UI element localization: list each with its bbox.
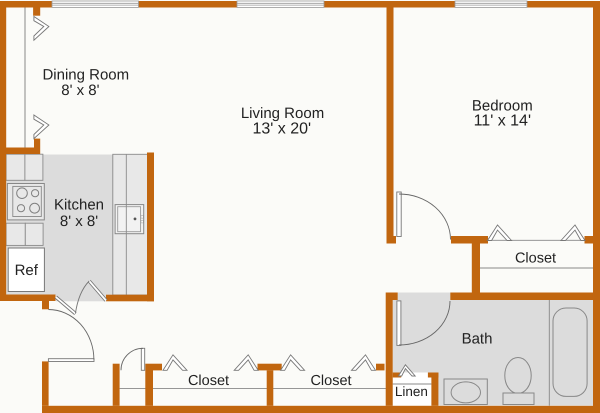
svg-text:Closet: Closet [515,250,556,266]
svg-text:13' x 20': 13' x 20' [253,121,312,138]
svg-text:Kitchen: Kitchen [54,197,104,214]
svg-text:Bath: Bath [462,331,493,348]
svg-text:8' x 8': 8' x 8' [60,213,98,230]
svg-text:Linen: Linen [395,384,428,399]
svg-text:Dining Room: Dining Room [42,67,129,84]
svg-text:Living Room: Living Room [241,105,324,122]
svg-text:8' x 8': 8' x 8' [61,82,99,99]
svg-text:Closet: Closet [310,373,351,389]
svg-text:11' x 14': 11' x 14' [474,113,531,130]
svg-text:Closet: Closet [188,373,229,389]
svg-text:Ref: Ref [15,262,39,279]
